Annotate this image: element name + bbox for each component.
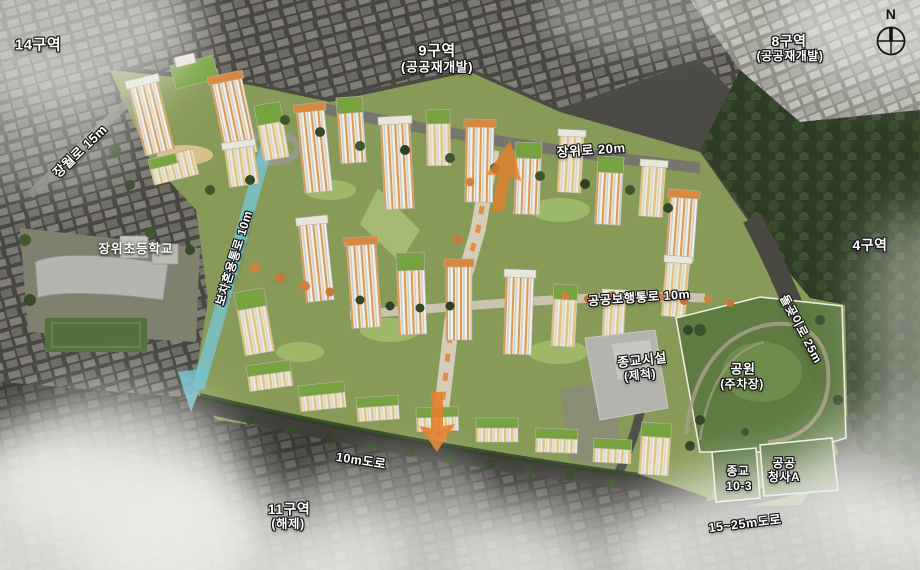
- rendered-map: [0, 0, 920, 570]
- school-label: 장위초등학교: [98, 243, 173, 256]
- zone-8-note: (공공재개발): [757, 50, 824, 62]
- park-note: (주차장): [720, 378, 764, 390]
- public-building-label-line2: 청사A: [768, 471, 800, 483]
- zone-9-label: 9구역: [418, 44, 455, 59]
- zone-4-label: 4구역: [852, 238, 887, 252]
- religion-parcel-label-line2: 10-3: [726, 480, 752, 492]
- compass-icon: [873, 21, 909, 61]
- public-building-label-line1: 공공: [772, 457, 795, 469]
- zone-14-label: 14구역: [15, 38, 61, 53]
- zone-11-note: (해제): [271, 518, 304, 531]
- religious-facility-note: (제척): [623, 367, 656, 382]
- zone-11-label: 11구역: [268, 502, 311, 516]
- site-plan-rendering: 14구역 장월로 15m 9구역 (공공재개발) 8구역 (공공재개발) 장위로…: [0, 0, 920, 570]
- religion-parcel-label-line1: 종교: [726, 465, 749, 477]
- zone-8-label: 8구역: [771, 34, 806, 48]
- zone-9-note: (공공재개발): [401, 61, 473, 74]
- compass-north-label: N: [886, 7, 897, 21]
- park-label: 공원: [731, 363, 756, 376]
